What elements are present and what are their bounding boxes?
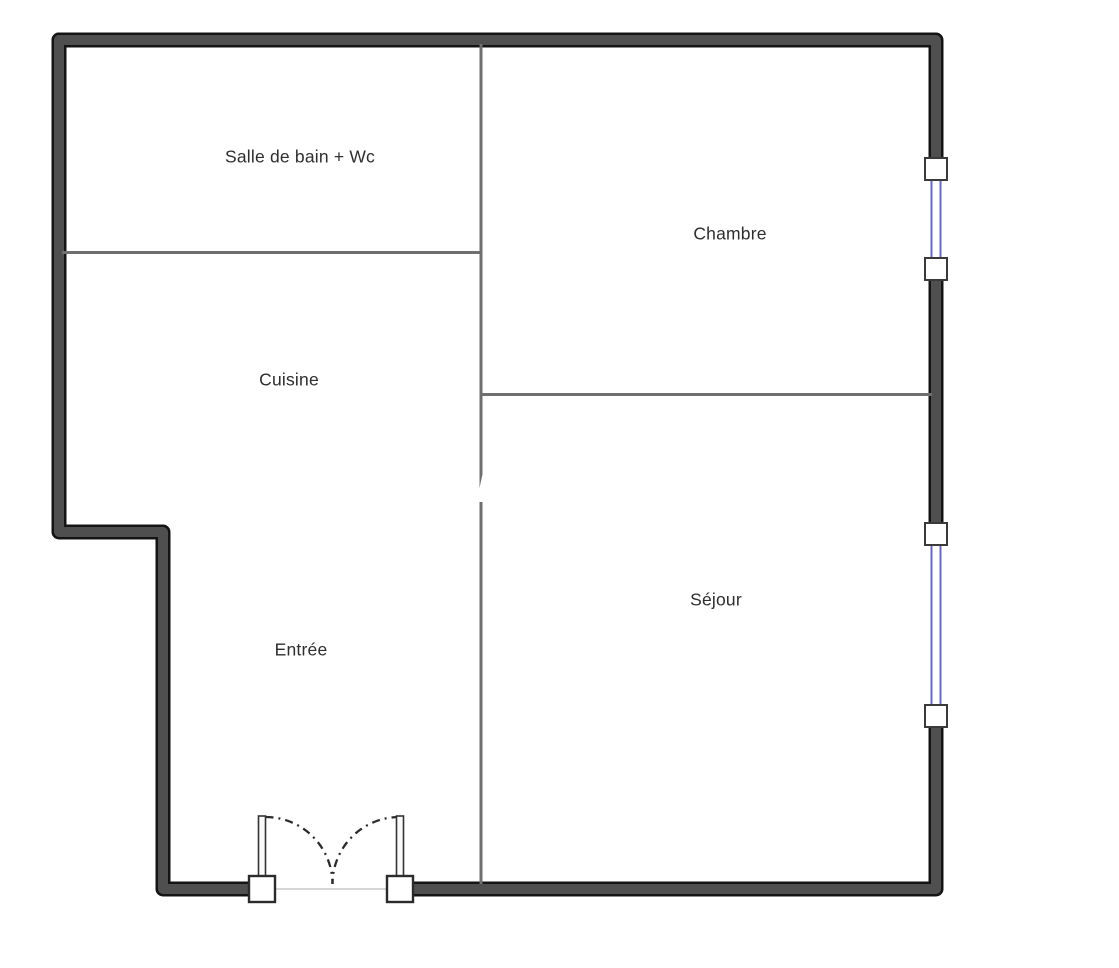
window-glass xyxy=(932,538,941,712)
window-frame-top xyxy=(925,523,947,545)
door-leaf-left xyxy=(259,816,266,878)
floor-plan-drawing xyxy=(0,0,1119,968)
watermark-w: W xyxy=(442,457,493,511)
floor-plan: Salle de bain + Wc Chambre Cuisine Séjou… xyxy=(0,0,1119,968)
exterior-wall-top-right-bottomright xyxy=(59,40,936,889)
room-label-entree: Entrée xyxy=(275,640,328,661)
room-label-sejour: Séjour xyxy=(690,590,742,611)
window-right-lower xyxy=(925,523,947,727)
door-swing-arc-left xyxy=(266,817,333,884)
door-swing-arc-right xyxy=(333,817,400,884)
window-frame-bottom xyxy=(925,258,947,280)
room-label-chambre: Chambre xyxy=(693,224,766,245)
exterior-wall-top-right-bottomright-fill xyxy=(59,40,936,889)
door-jamb-right xyxy=(387,876,413,902)
room-label-salle-de-bain: Salle de bain + Wc xyxy=(225,147,375,168)
exterior-wall-left-step-bottomleft xyxy=(59,40,253,889)
door-leaf-right xyxy=(397,816,404,878)
window-right-upper xyxy=(925,158,947,280)
window-frame-bottom xyxy=(925,705,947,727)
door-jamb-left xyxy=(249,876,275,902)
window-frame-top xyxy=(925,158,947,180)
entry-double-door xyxy=(249,816,413,902)
room-label-cuisine: Cuisine xyxy=(259,370,319,391)
window-glass xyxy=(932,172,941,268)
